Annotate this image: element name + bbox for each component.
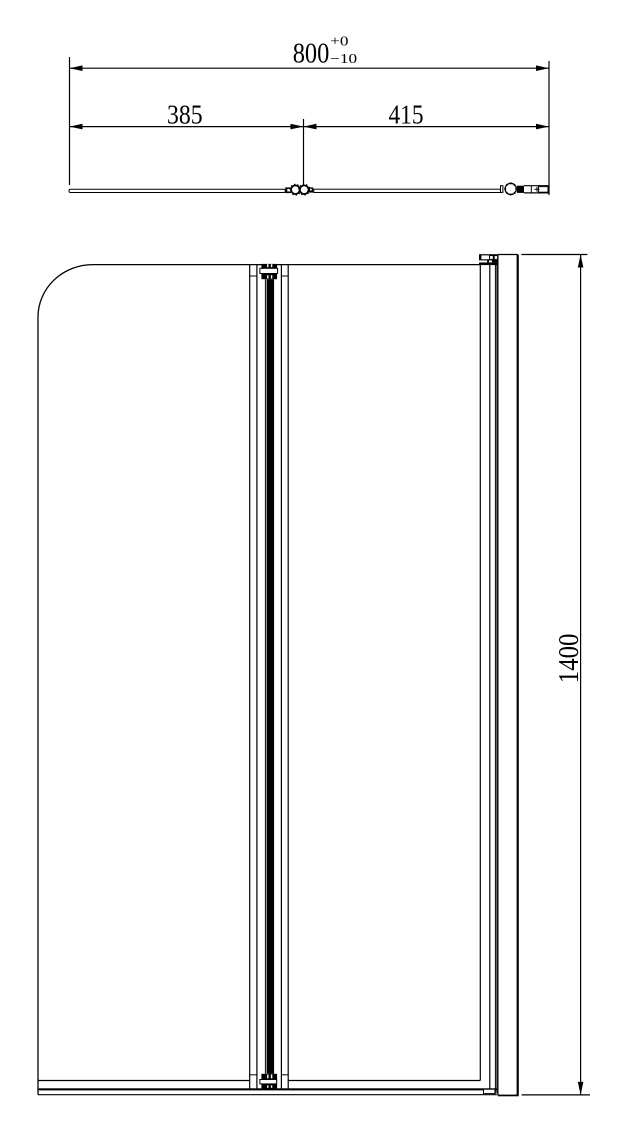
svg-text:1400: 1400 <box>554 634 585 684</box>
svg-text:−10: −10 <box>330 52 357 67</box>
svg-text:+0: +0 <box>330 35 348 50</box>
svg-text:385: 385 <box>167 100 203 130</box>
svg-text:415: 415 <box>389 100 424 130</box>
svg-text:800: 800 <box>293 38 330 69</box>
